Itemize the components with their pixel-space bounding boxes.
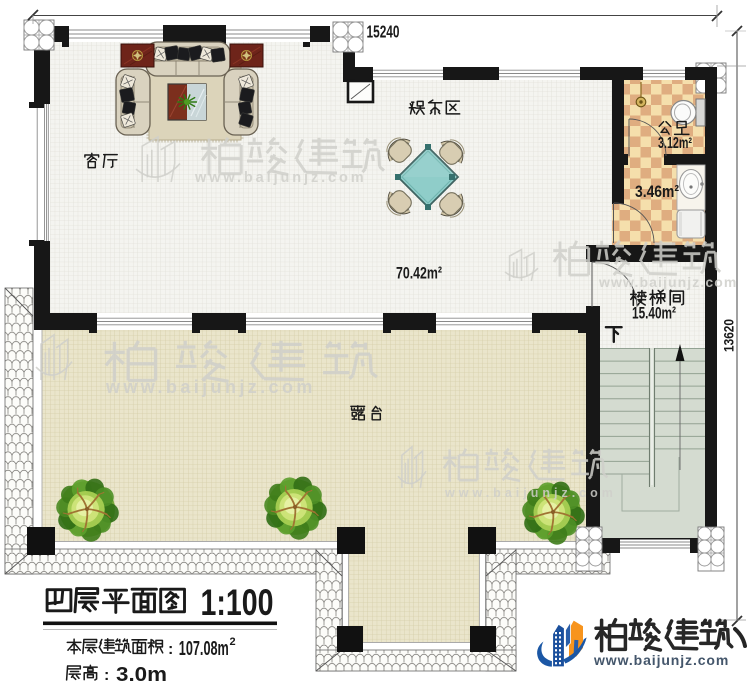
svg-text:www.baijunjz.com: www.baijunjz.com bbox=[593, 652, 729, 668]
svg-text:2: 2 bbox=[230, 636, 236, 648]
svg-text:15240: 15240 bbox=[367, 22, 400, 42]
svg-text:www.baijunjz.com: www.baijunjz.com bbox=[598, 274, 737, 290]
svg-text:www.baijunjz.com: www.baijunjz.com bbox=[194, 170, 367, 186]
svg-text::: : bbox=[104, 667, 109, 684]
svg-text:www.baijunjz.com: www.baijunjz.com bbox=[105, 377, 316, 397]
svg-text:www.baijunjz.com: www.baijunjz.com bbox=[444, 486, 617, 500]
svg-text::: : bbox=[168, 641, 173, 658]
svg-text:107.08m: 107.08m bbox=[179, 637, 229, 660]
svg-text:1:100: 1:100 bbox=[201, 582, 274, 623]
svg-text:3.46m²: 3.46m² bbox=[635, 182, 679, 201]
svg-text:13620: 13620 bbox=[722, 319, 737, 352]
svg-text:3.12m²: 3.12m² bbox=[658, 135, 692, 152]
svg-text:70.42m²: 70.42m² bbox=[396, 265, 442, 283]
svg-text:3.0m: 3.0m bbox=[116, 663, 167, 685]
svg-text:15.40m²: 15.40m² bbox=[632, 305, 676, 323]
